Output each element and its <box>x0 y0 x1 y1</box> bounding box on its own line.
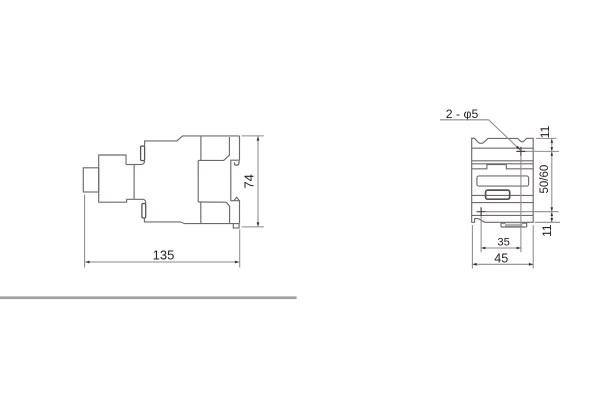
svg-text:135: 135 <box>153 247 175 262</box>
svg-text:11: 11 <box>538 125 552 138</box>
svg-text:74: 74 <box>242 174 257 188</box>
svg-text:35: 35 <box>497 237 509 249</box>
svg-text:50/60: 50/60 <box>539 165 551 194</box>
svg-text:2 - φ5: 2 - φ5 <box>446 107 479 121</box>
svg-text:45: 45 <box>494 252 508 266</box>
svg-text:11: 11 <box>540 224 554 237</box>
